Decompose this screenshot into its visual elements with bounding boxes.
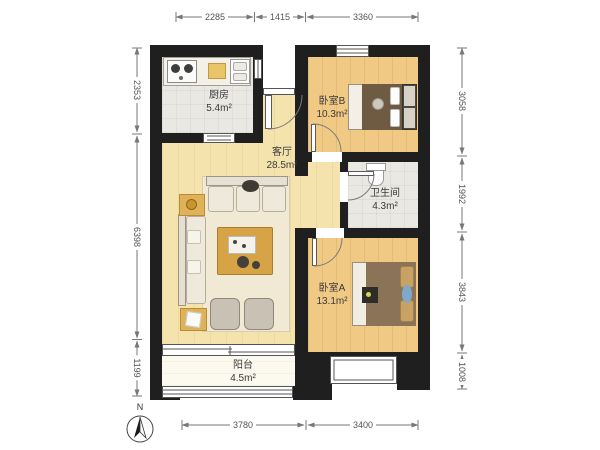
room-area: 4.5m² <box>230 372 256 385</box>
wall <box>295 57 308 152</box>
dim-right-3: 3843 <box>457 279 467 305</box>
cutting-board <box>208 63 226 79</box>
dim-right-1: 3058 <box>457 88 467 114</box>
dim-left-1: 2353 <box>132 77 142 103</box>
room-area: 28.5m² <box>266 159 297 172</box>
entry-threshold <box>263 88 295 95</box>
bedroom-a-doorway <box>316 228 344 238</box>
wall <box>397 352 430 390</box>
dim-left-3: 1199 <box>132 355 142 380</box>
wall <box>418 45 430 386</box>
teapot-icon <box>237 256 249 268</box>
room-area: 4.3m² <box>370 200 400 213</box>
wardrobe-door <box>404 108 415 128</box>
bedroom-b-doorway <box>312 152 342 162</box>
magazine <box>185 311 202 328</box>
room-name: 卧室A <box>316 282 347 295</box>
dim-right-2: 1992 <box>457 181 467 207</box>
room-label-kitchen: 厨房 5.4m² <box>206 89 232 115</box>
room-name: 客厅 <box>266 146 297 159</box>
room-label-balcony: 阳台 4.5m² <box>230 359 256 385</box>
wall <box>150 45 162 400</box>
cup-icon <box>233 240 237 244</box>
sofa-throw <box>242 180 259 192</box>
pillow <box>390 109 400 127</box>
floorplan-canvas: 厨房 5.4m² 卧室B 10.3m² 客厅 28.5m² 卫生间 4.3m² … <box>0 0 600 450</box>
sofa-back-left <box>178 214 186 306</box>
throw-pillow <box>187 260 201 274</box>
bowl-dark-icon <box>252 261 260 269</box>
pillow <box>400 300 414 322</box>
sofa-cushion <box>262 186 286 212</box>
room-name: 卧室B <box>316 95 347 108</box>
sofa-cushion <box>208 186 234 212</box>
entry-door-leaf <box>265 95 272 129</box>
burner-icon <box>171 64 180 73</box>
wall <box>293 386 313 400</box>
ottoman <box>210 298 240 330</box>
room-area: 5.4m² <box>206 102 232 115</box>
dim-right-4: 1008 <box>457 359 467 385</box>
wall <box>150 45 263 57</box>
bathroom-doorway <box>340 172 348 202</box>
room-area: 10.3m² <box>316 108 347 121</box>
burner-icon <box>184 64 193 73</box>
bedroom-b-window <box>336 45 369 57</box>
room-label-living: 客厅 28.5m² <box>266 146 297 172</box>
north-compass <box>127 416 153 442</box>
room-label-bedroom-b: 卧室B 10.3m² <box>316 95 347 121</box>
dim-bottom-1: 3780 <box>230 420 256 430</box>
compass-north-label: N <box>137 402 144 412</box>
kitchen-sliding-door <box>203 133 235 143</box>
kitchen-window <box>254 59 262 79</box>
bed-decor-plate <box>372 98 384 110</box>
bedroom-b-door-leaf <box>311 124 316 152</box>
dim-left-2: 6398 <box>132 224 142 250</box>
room-area: 13.1m² <box>316 295 347 308</box>
lamp-icon <box>366 292 371 297</box>
bathroom-door-leaf <box>348 171 374 176</box>
sink-basin <box>233 73 247 81</box>
balcony-window <box>162 386 293 398</box>
dim-bottom-2: 3400 <box>350 420 376 430</box>
dim-top-1: 2285 <box>202 12 228 22</box>
pillow <box>390 87 400 105</box>
bay-window <box>330 356 397 384</box>
room-label-bedroom-a: 卧室A 13.1m² <box>316 282 347 308</box>
bowl-icon <box>186 199 197 210</box>
wall <box>295 238 308 390</box>
cup-icon <box>242 244 246 248</box>
ottoman <box>244 298 274 330</box>
room-label-bathroom: 卫生间 4.3m² <box>370 187 400 213</box>
room-name: 卫生间 <box>370 187 400 200</box>
balcony-sliding-door <box>162 344 295 356</box>
room-name: 厨房 <box>206 89 232 102</box>
sink-basin <box>233 62 247 71</box>
wardrobe-door <box>404 86 415 106</box>
bedroom-a-door-leaf <box>312 238 317 266</box>
pillow-blue <box>402 285 412 303</box>
room-name: 阳台 <box>230 359 256 372</box>
dim-top-2: 1415 <box>267 12 293 22</box>
dim-top-3: 3360 <box>350 12 376 22</box>
stove-knob-icon <box>179 76 183 80</box>
throw-pillow <box>187 230 201 244</box>
